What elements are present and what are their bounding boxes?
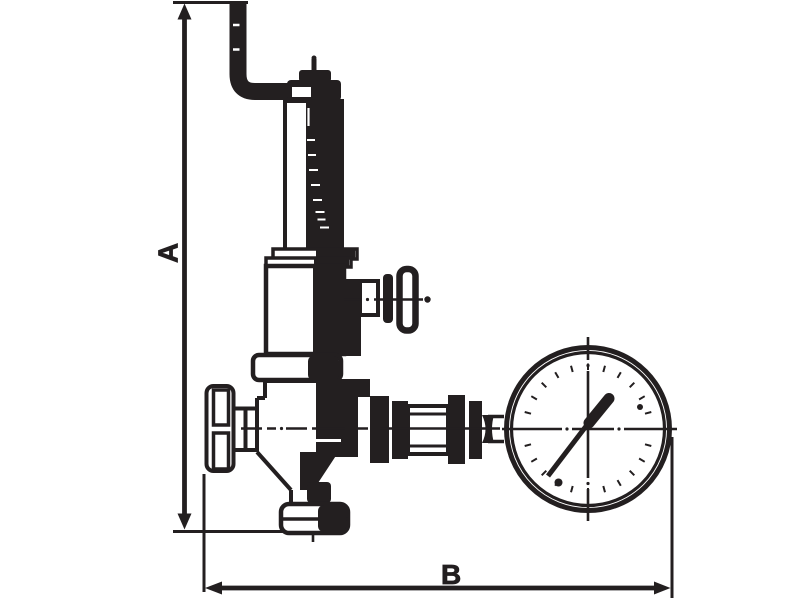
svg-text:B: B [441, 559, 461, 590]
svg-text:A: A [153, 243, 184, 263]
